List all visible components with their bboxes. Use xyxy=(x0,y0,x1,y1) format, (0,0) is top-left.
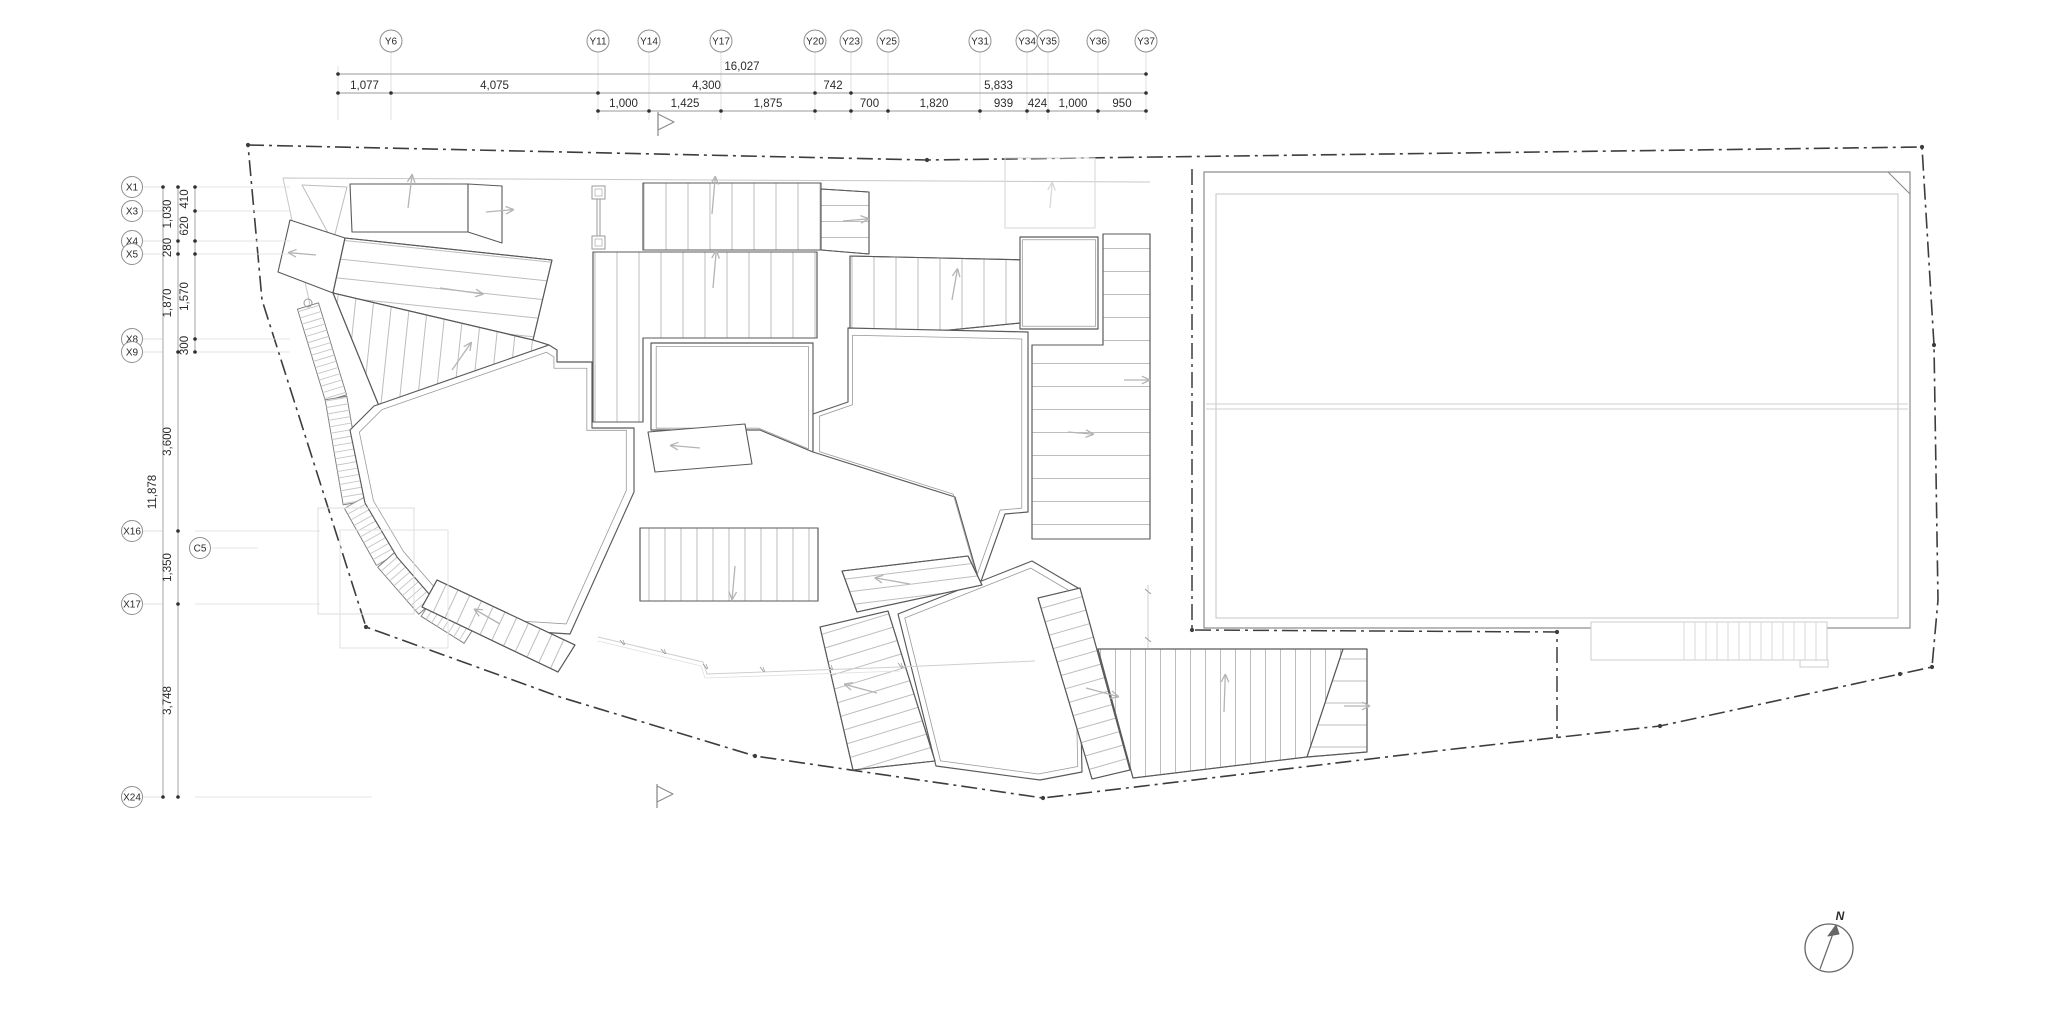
dim-value: 1,000 xyxy=(1059,98,1088,110)
north-arrow: N xyxy=(1805,909,1853,972)
grid-bubble-label: Y11 xyxy=(589,37,606,48)
dim-tick xyxy=(849,91,853,95)
dim-tick xyxy=(647,109,651,113)
dim-tick xyxy=(176,252,180,256)
dim-tick xyxy=(1144,109,1148,113)
vertex-dot xyxy=(1190,628,1194,632)
dim-value: 3,600 xyxy=(162,427,174,456)
vertex-dot xyxy=(1932,343,1936,347)
dim-value: 280 xyxy=(162,238,174,257)
dim-value: 1,030 xyxy=(162,200,174,229)
roof-top-small xyxy=(468,184,502,243)
roof-plan-page: Y6Y11Y14Y17Y20Y23Y25Y31Y34Y35Y36Y3716,02… xyxy=(0,0,2048,1024)
grid-bubble-label: X17 xyxy=(123,600,141,611)
dim-value: 11,878 xyxy=(147,475,159,509)
dim-value: 1,350 xyxy=(162,553,174,582)
dim-value: 5,833 xyxy=(984,80,1013,92)
section-flag-triangle xyxy=(657,786,673,802)
canopy-step xyxy=(1800,660,1828,667)
rooflight-faint xyxy=(1005,158,1095,228)
grid-bubble-label: X16 xyxy=(123,527,141,538)
dim-tick xyxy=(193,239,197,243)
grid-bubble-label: Y25 xyxy=(879,37,897,48)
dim-tick xyxy=(1144,72,1148,76)
grid-bubble-label: X5 xyxy=(126,250,139,261)
grid-bubble-label: Y17 xyxy=(712,37,730,48)
dim-tick xyxy=(176,239,180,243)
vertex-dot xyxy=(1658,724,1662,728)
dim-tick xyxy=(813,91,817,95)
dim-value: 1,870 xyxy=(162,289,174,318)
vertex-dot xyxy=(1041,796,1045,800)
dim-tick xyxy=(161,795,165,799)
dim-value: 1,425 xyxy=(671,98,700,110)
roof-top-rect xyxy=(350,184,468,232)
dim-value: 4,300 xyxy=(692,80,721,92)
dim-value: 1,820 xyxy=(920,98,949,110)
dim-value: 424 xyxy=(1028,98,1048,110)
vertex-dot xyxy=(925,158,929,162)
dim-tick xyxy=(176,529,180,533)
dim-tick xyxy=(193,185,197,189)
grid-bubble-label: Y36 xyxy=(1089,37,1107,48)
dim-value: 3,748 xyxy=(162,686,174,715)
dim-value: 4,075 xyxy=(480,80,509,92)
north-label: N xyxy=(1836,909,1845,923)
grid-bubble-label: X24 xyxy=(123,793,141,804)
grid-bubble-label: X1 xyxy=(126,183,139,194)
dim-tick xyxy=(596,91,600,95)
dim-tick xyxy=(1144,91,1148,95)
dim-tick xyxy=(176,795,180,799)
vertex-dot xyxy=(1930,665,1934,669)
dim-tick xyxy=(176,602,180,606)
dim-value: 1,875 xyxy=(754,98,783,110)
slope-arrow xyxy=(1048,182,1056,208)
dim-tick xyxy=(389,91,393,95)
dim-value: 700 xyxy=(860,98,879,110)
section-flag-triangle xyxy=(658,114,674,130)
dim-tick xyxy=(193,209,197,213)
ladder-box xyxy=(592,236,605,249)
dim-value: 939 xyxy=(994,98,1013,110)
grid-bubble-label: C5 xyxy=(194,544,207,555)
vertex-dot xyxy=(1920,145,1924,149)
dim-tick xyxy=(161,185,165,189)
grid-bubble-label: Y14 xyxy=(640,37,658,48)
dim-tick xyxy=(336,91,340,95)
dim-tick xyxy=(596,109,600,113)
right-building-outline xyxy=(1204,172,1910,628)
dim-value: 742 xyxy=(823,80,842,92)
dim-tick xyxy=(719,109,723,113)
dim-value: 1,077 xyxy=(350,80,379,92)
grid-bubble-label: X3 xyxy=(126,207,139,218)
dim-tick xyxy=(193,252,197,256)
dim-tick xyxy=(978,109,982,113)
ladder-box xyxy=(592,186,605,199)
dim-tick xyxy=(176,185,180,189)
dim-value: 410 xyxy=(179,189,191,208)
vertex-dot xyxy=(1898,672,1902,676)
grid-bubble-label: Y20 xyxy=(806,37,824,48)
dim-value: 16,027 xyxy=(724,61,759,73)
grid-bubble-label: Y31 xyxy=(971,37,989,48)
dim-tick xyxy=(1096,109,1100,113)
courtyard-east xyxy=(813,328,1028,584)
grid-bubble-label: Y37 xyxy=(1137,37,1155,48)
grid-bubble-label: Y6 xyxy=(385,37,398,48)
vertex-dot xyxy=(364,625,368,629)
vertex-dot xyxy=(1555,630,1559,634)
grid-bubble-label: Y35 xyxy=(1039,37,1057,48)
dim-tick xyxy=(886,109,890,113)
north-arrowhead xyxy=(1828,925,1839,936)
courtyard-northeast xyxy=(1020,237,1098,329)
dim-value: 1,570 xyxy=(179,282,191,311)
grid-bubble-label: X9 xyxy=(126,348,139,359)
dim-value: 300 xyxy=(179,336,191,355)
vertex-dot xyxy=(753,754,757,758)
grid-bubble-label: Y23 xyxy=(842,37,860,48)
dim-tick xyxy=(336,72,340,76)
dim-value: 950 xyxy=(1112,98,1131,110)
dim-tick xyxy=(193,337,197,341)
dim-value: 620 xyxy=(179,216,191,235)
dim-tick xyxy=(193,350,197,354)
canopy-strip xyxy=(1591,622,1827,660)
north-circle xyxy=(1805,924,1853,972)
dim-tick xyxy=(849,109,853,113)
roof-plan-canvas: Y6Y11Y14Y17Y20Y23Y25Y31Y34Y35Y36Y3716,02… xyxy=(0,0,2048,1024)
vertex-dot xyxy=(246,143,250,147)
grid-bubble-label: Y34 xyxy=(1018,37,1036,48)
dim-tick xyxy=(813,109,817,113)
dim-value: 1,000 xyxy=(609,98,638,110)
